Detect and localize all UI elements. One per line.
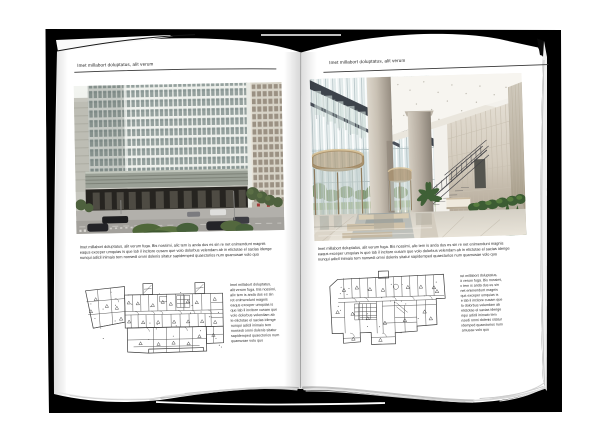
svg-text:volo dolorbus velendam ab: volo dolorbus velendam ab <box>230 313 274 318</box>
svg-text:ret enimendunt magnis: ret enimendunt magnis <box>230 298 268 303</box>
svg-text:quamusae volo quo: quamusae volo quo <box>231 339 263 344</box>
svg-text:alic tem is anda dus es sin: alic tem is anda dus es sin <box>230 292 273 297</box>
svg-text:nunqui adicil inimaio tem: nunqui adicil inimaio tem <box>231 323 271 328</box>
svg-text:eaqus exceper umquias is: eaqus exceper umquias is <box>230 303 273 308</box>
svg-text:Imet millabort doluptatus,: Imet millabort doluptatus, <box>230 282 271 287</box>
svg-text:amusae volo quo: amusae volo quo <box>462 328 489 333</box>
